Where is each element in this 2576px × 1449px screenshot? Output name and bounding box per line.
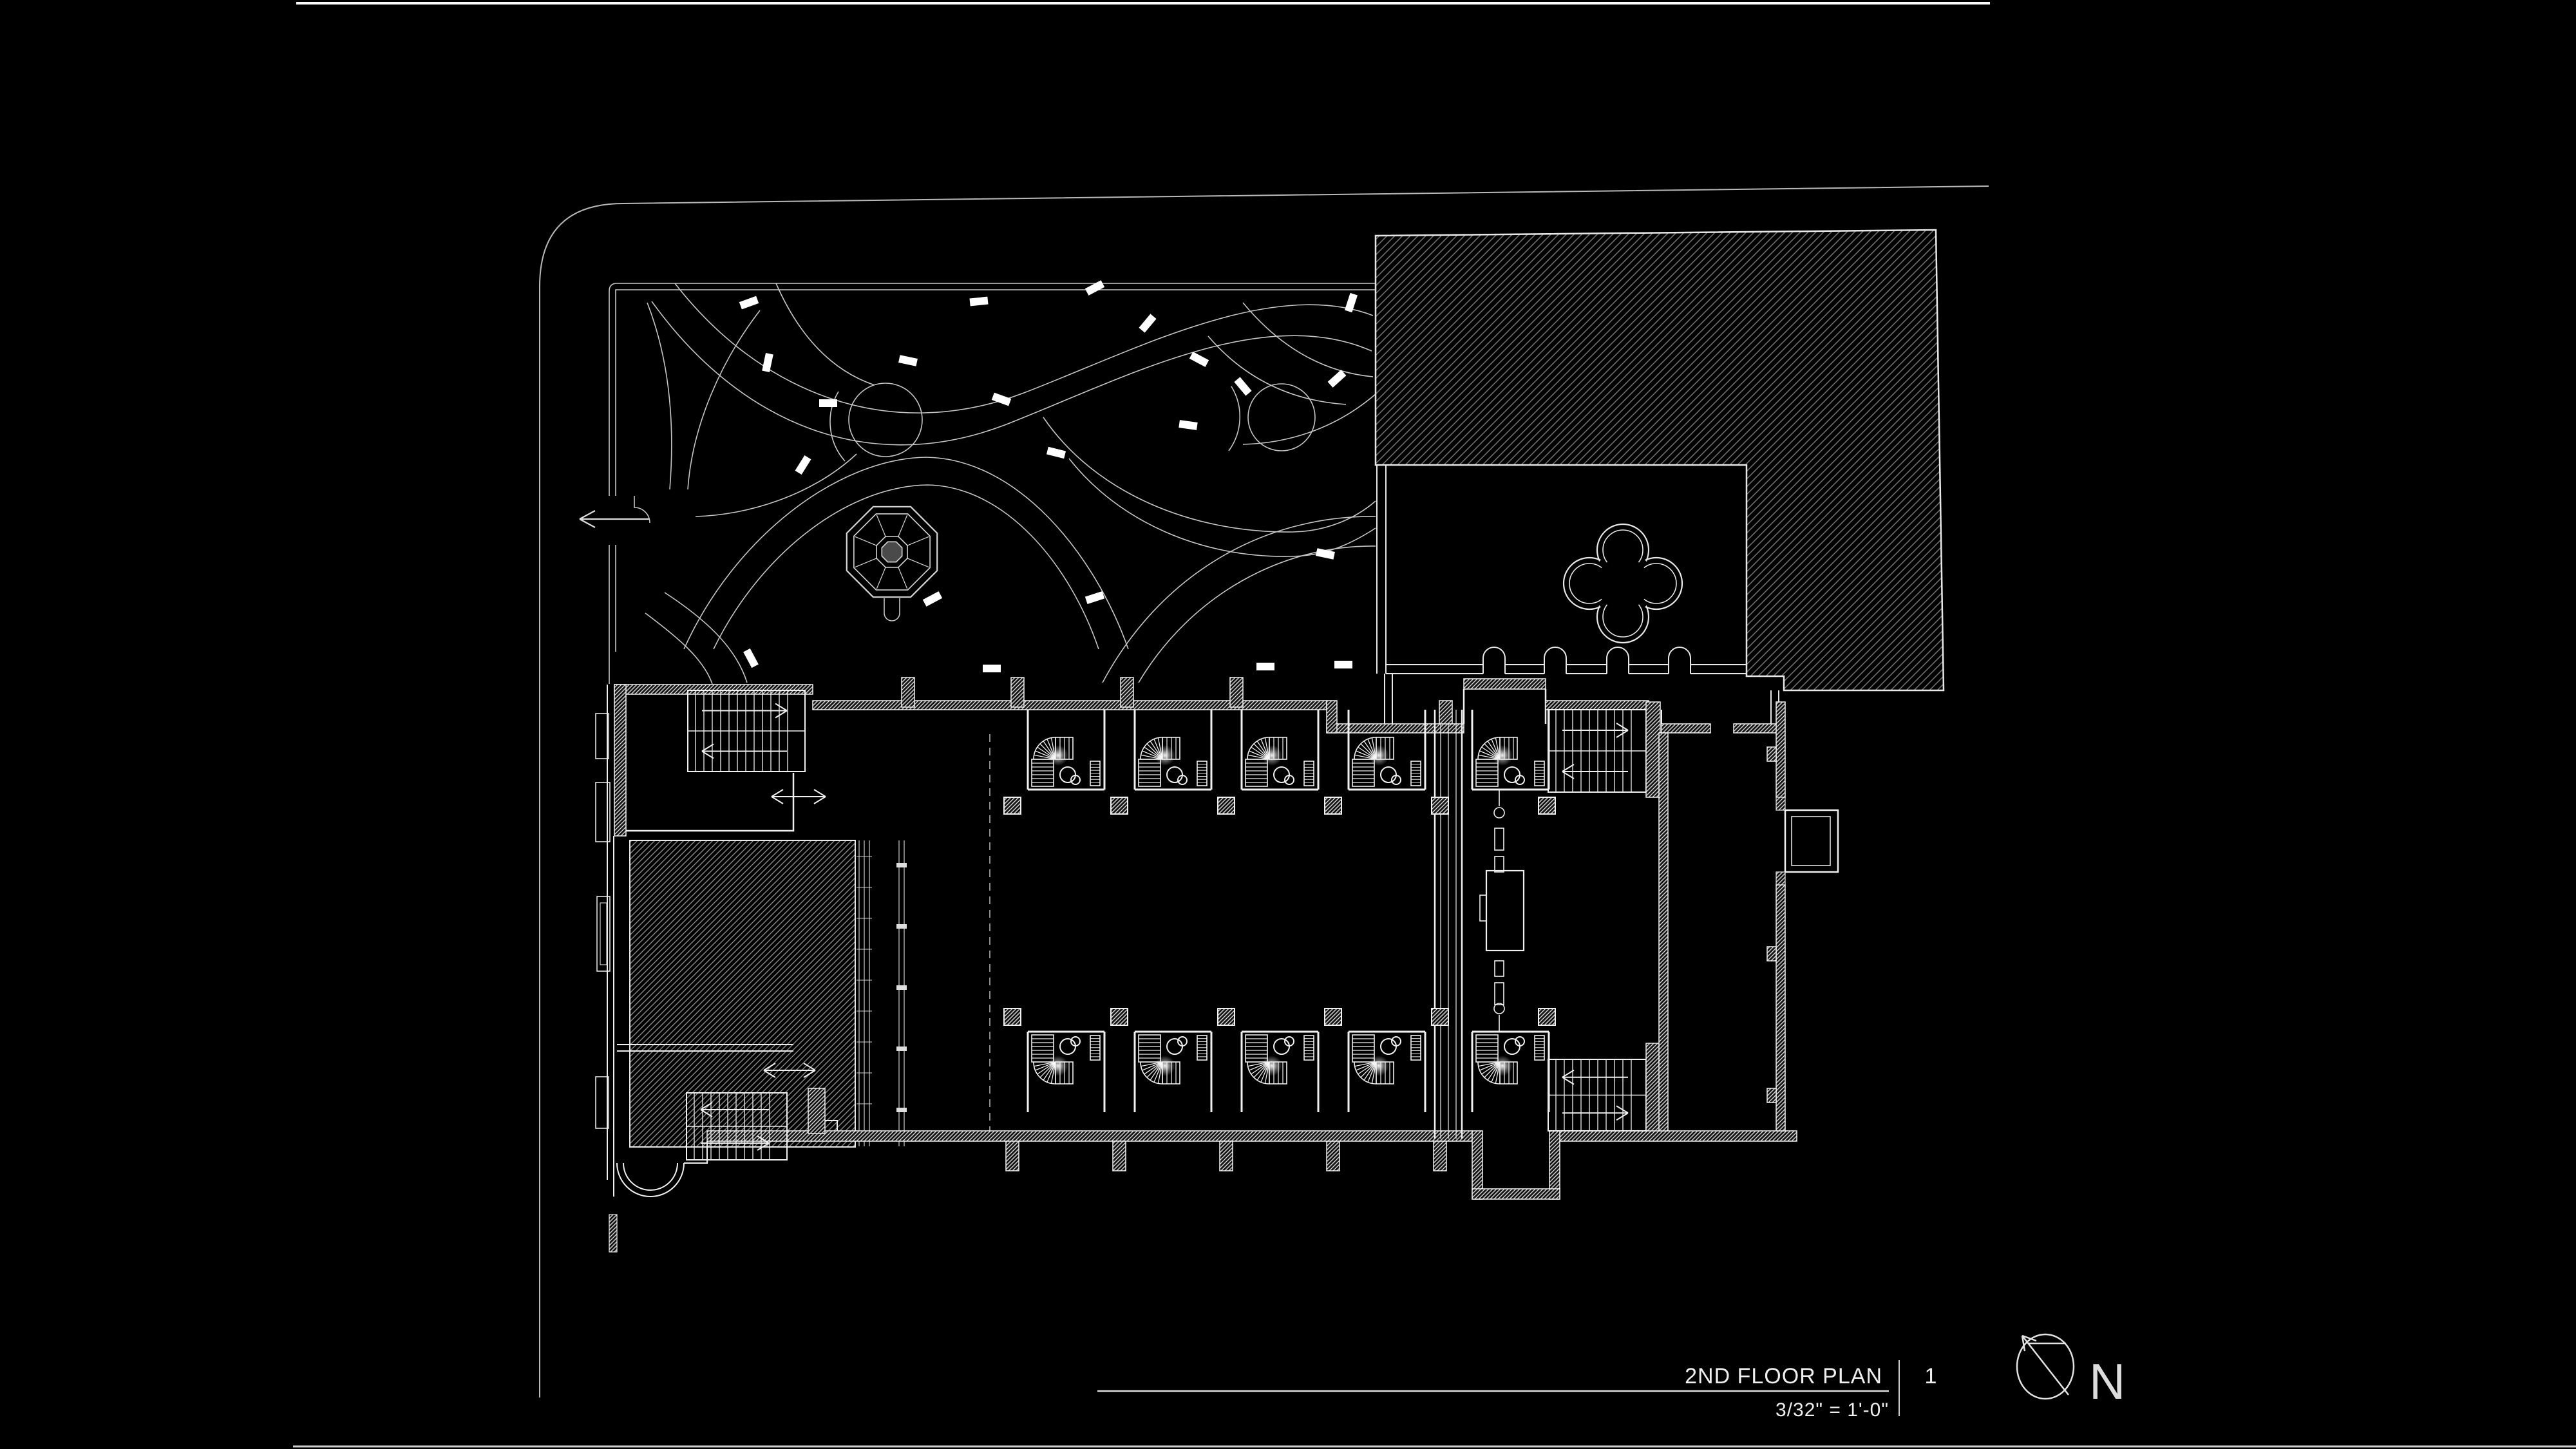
column — [1218, 1009, 1235, 1025]
toilet-icon — [1381, 767, 1396, 782]
bench — [1085, 591, 1104, 604]
bench — [1234, 377, 1251, 395]
mullion-block — [896, 1046, 907, 1051]
garden-circle-west — [849, 383, 922, 457]
fountain-spoke — [907, 536, 929, 545]
arrow-head — [1616, 1106, 1628, 1113]
pilaster — [902, 677, 914, 707]
bench — [1345, 293, 1358, 312]
pilaster — [1113, 1141, 1126, 1171]
unit — [1472, 1032, 1549, 1112]
fountain-spoke — [898, 567, 907, 589]
north-wall — [614, 679, 1784, 836]
stair-glow — [1048, 1056, 1068, 1076]
arrow-head — [772, 790, 783, 797]
bench — [898, 355, 918, 366]
bench — [1179, 420, 1197, 430]
bench — [1189, 352, 1209, 367]
bench — [739, 296, 759, 310]
corridor-band — [1435, 710, 1462, 1139]
pilaster — [1011, 677, 1024, 707]
drawing-sheet: 2ND FLOOR PLAN 1 3/32" = 1'-0" N — [0, 0, 2576, 1449]
pilaster — [1230, 677, 1243, 707]
column — [1539, 1009, 1555, 1025]
mullion-block — [896, 863, 907, 867]
arch-opening — [1544, 647, 1566, 674]
neighbor-building — [1376, 230, 1944, 725]
garden-wall-inner — [616, 290, 1376, 652]
unit — [1349, 710, 1425, 790]
plan-scale: 3/32" = 1'-0" — [1776, 1399, 1889, 1421]
pulpit-element — [1480, 790, 1524, 1032]
stair-glow — [1492, 745, 1513, 766]
unit — [1242, 710, 1318, 790]
colonnade-columns — [1004, 797, 1555, 1025]
toilet-icon — [1060, 1039, 1075, 1054]
bench — [1334, 661, 1352, 668]
bench — [1046, 447, 1066, 459]
residential-units — [1028, 710, 1549, 1112]
neighbor-building-hatch — [1376, 230, 1944, 690]
fountain-outlet — [884, 598, 900, 621]
bench — [1139, 314, 1156, 332]
toilet-icon — [1274, 1039, 1289, 1054]
courtyard-arcade — [1386, 647, 1747, 674]
floor-plan-svg: 2ND FLOOR PLAN 1 3/32" = 1'-0" N — [0, 0, 2576, 1449]
bench — [969, 297, 988, 307]
sheet-number: 1 — [1925, 1364, 1937, 1388]
column — [1111, 1009, 1128, 1025]
column — [1111, 797, 1128, 814]
arrow-head — [814, 797, 826, 804]
unit — [1472, 710, 1549, 790]
column — [1539, 797, 1555, 814]
pilaster — [1439, 701, 1452, 724]
column — [1218, 797, 1235, 814]
arrow-head — [1616, 1113, 1628, 1120]
east-hall — [1659, 702, 1785, 1131]
unit — [1242, 1032, 1318, 1112]
apse-inner-arc — [623, 1163, 677, 1190]
pilaster — [1434, 1141, 1446, 1171]
bench — [923, 591, 942, 607]
north-arrow-icon: N — [2017, 1334, 2125, 1410]
toilet-icon — [1060, 767, 1075, 782]
stair-glow — [1262, 745, 1282, 766]
unit — [1135, 710, 1211, 790]
stair-southeast — [1548, 1043, 1660, 1131]
bench — [743, 649, 759, 668]
stair-glow — [1492, 1056, 1513, 1076]
garden — [580, 283, 1376, 684]
stair-glow — [1155, 1056, 1175, 1076]
unit — [1028, 710, 1104, 790]
plan-title: 2ND FLOOR PLAN — [1685, 1364, 1882, 1388]
stair-glow — [1048, 745, 1068, 766]
exit-arrow-icon — [580, 511, 649, 527]
bench — [762, 353, 773, 372]
main-building — [596, 677, 1838, 1252]
stair-northeast — [1548, 702, 1662, 797]
stair-glow — [1368, 745, 1389, 766]
toilet-icon — [1167, 1039, 1182, 1054]
arrow-head — [1616, 730, 1628, 737]
unit — [1135, 1032, 1211, 1112]
bench — [1328, 370, 1347, 388]
arch-opening — [1483, 647, 1505, 674]
sliding-door-arrow — [772, 790, 826, 804]
arrow-head — [772, 797, 783, 804]
garden-paths — [645, 283, 1376, 684]
arch-opening — [1669, 647, 1690, 674]
bench — [795, 455, 811, 475]
garden-circle-east — [1248, 384, 1315, 451]
stair-glow — [1262, 1056, 1282, 1076]
title-block: 2ND FLOOR PLAN 1 3/32" = 1'-0" — [1097, 1360, 1937, 1421]
bench — [1256, 663, 1274, 670]
column — [1432, 1009, 1448, 1025]
fountain-spoke — [898, 515, 907, 536]
bench — [1085, 280, 1104, 296]
courtyard — [1377, 465, 1779, 725]
stair-glow — [1368, 1056, 1389, 1076]
arrow-head — [1616, 723, 1628, 730]
toilet-icon — [1504, 767, 1520, 782]
quatrefoil-fountain — [1564, 524, 1682, 643]
window-mullions — [857, 840, 907, 1146]
toilet-icon — [1381, 1039, 1396, 1054]
garden-wall-outer — [609, 283, 1376, 684]
mullion-block — [896, 924, 907, 929]
column — [1432, 797, 1448, 814]
pilaster — [1220, 1141, 1233, 1171]
east-bay-window — [1776, 797, 1838, 885]
bench — [992, 393, 1011, 406]
stair-glow — [1155, 745, 1175, 766]
fountain-spoke — [855, 558, 876, 567]
arrow-head — [814, 790, 826, 797]
toilet-icon — [1504, 1039, 1520, 1054]
column — [1325, 1009, 1341, 1025]
arrow-head — [775, 711, 787, 718]
north-label: N — [2089, 1353, 2125, 1410]
garden-benches — [739, 280, 1358, 672]
apse-outer-arc — [617, 1163, 684, 1197]
column — [1004, 1009, 1021, 1025]
mullion-block — [896, 985, 907, 990]
south-wall — [707, 1131, 1797, 1199]
bench — [819, 399, 837, 407]
unit — [1349, 1032, 1425, 1112]
toilet-icon — [1274, 767, 1289, 782]
west-facade — [596, 685, 614, 1180]
garden-fountain-octagon — [847, 507, 937, 597]
fountain-spoke — [876, 567, 885, 589]
column — [1325, 797, 1341, 814]
arrow-head — [775, 704, 787, 711]
pilaster — [1121, 677, 1133, 707]
stair-northwest — [626, 690, 805, 831]
mullion-block — [896, 1108, 907, 1112]
pilaster — [1006, 1141, 1019, 1171]
column — [1004, 797, 1021, 814]
fountain-spoke — [876, 515, 885, 536]
unit — [1028, 1032, 1104, 1112]
fountain-ring — [882, 542, 902, 562]
fountain-spoke — [855, 536, 876, 545]
toilet-icon — [1167, 767, 1182, 782]
bench — [983, 665, 1001, 672]
pilaster — [1327, 1141, 1340, 1171]
fountain-spoke — [907, 558, 929, 567]
arch-opening — [1607, 647, 1629, 674]
